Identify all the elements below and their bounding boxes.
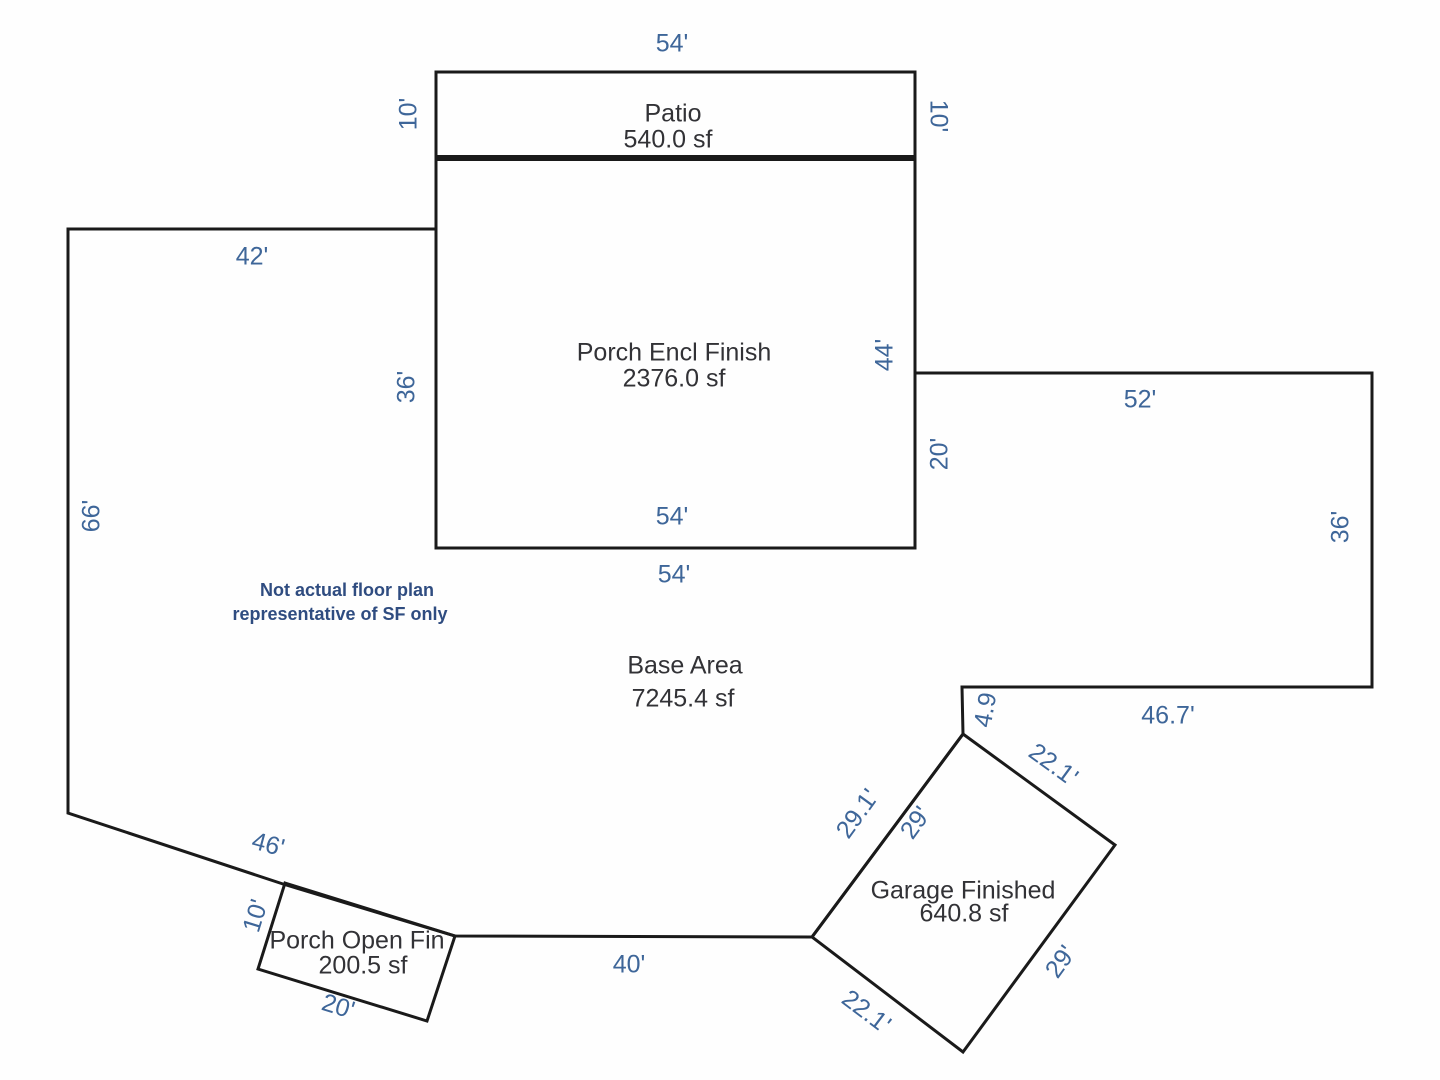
base-area-label: Base Area [627,654,742,679]
dim-base-left: 66' [80,500,105,533]
disclaimer-line-2: representative of SF only [232,605,447,623]
patio-label: Patio [645,102,702,127]
dim-porch-right: 44' [873,339,898,372]
disclaimer-line-1: Not actual floor plan [260,581,434,599]
dim-wing-left: 20' [928,438,953,471]
dim-porch-bottom-inner: 54' [656,505,689,530]
floorplan-sketch: 54' 10' 10' 42' 36' 44' 20' 52' 66' 54' … [0,0,1440,1080]
dim-wing-right: 36' [1329,511,1354,544]
dim-wing-bottom: 46.7' [1141,704,1194,729]
porch-encl-sf: 2376.0 sf [623,367,726,392]
porch-open-label: Porch Open Fin [269,929,444,954]
sketch-lines [0,0,1440,1080]
dim-porch-left: 36' [395,371,420,404]
dim-patio-left: 10' [397,98,422,131]
dim-base-bottom: 40' [613,953,646,978]
dim-wing-top: 52' [1124,388,1157,413]
dim-notch: 4.9 [971,691,1002,730]
porch-encl-label: Porch Encl Finish [577,341,772,366]
dim-patio-top: 54' [656,32,689,57]
dim-base-top: 42' [236,245,269,270]
dim-patio-right: 10' [926,100,951,133]
porch-open-sf: 200.5 sf [319,954,408,979]
patio-sf: 540.0 sf [624,128,713,153]
garage-sf: 640.8 sf [920,902,1009,927]
base-area-sf: 7245.4 sf [632,687,735,712]
dim-porch-bottom-outer: 54' [658,563,691,588]
